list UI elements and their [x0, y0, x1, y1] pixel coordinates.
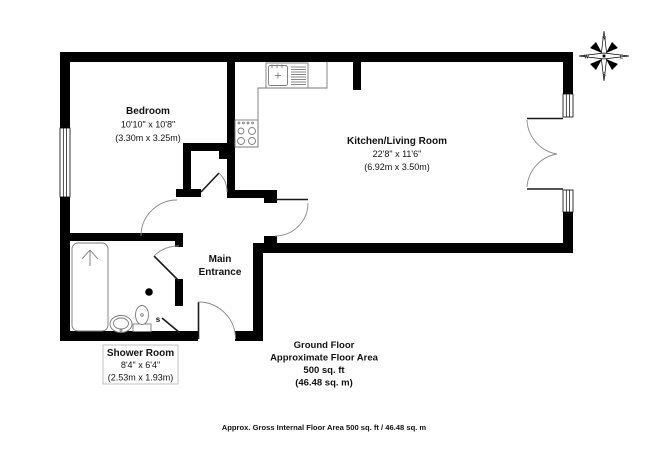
wall-segment-hall-right [253, 243, 263, 341]
storage-cupboard-door: s [156, 315, 180, 333]
room-labels: Bedroom 10'10" x 10'8" (3.30m x 3.25m) K… [103, 106, 447, 432]
wall-segment-bottom-shower [60, 331, 198, 341]
area-line1: Ground Floor [294, 340, 355, 351]
area-line3: 500 sq. ft [303, 365, 345, 376]
footer-caption: Approx. Gross Internal Floor Area 500 sq… [222, 423, 427, 432]
kitchen-living-metric: (6.92m x 3.50m) [364, 162, 430, 172]
compass-point-se [606, 59, 618, 70]
wall-segment-shower-right-upper [175, 233, 183, 247]
bedroom-name: Bedroom [126, 106, 170, 117]
wall-segment-shower-right-mid [175, 279, 183, 306]
compass-rose: N E S W [579, 31, 629, 81]
bedroom-window [60, 128, 70, 197]
shower-room-label: Shower Room 8'4" x 6'4" (2.53m x 1.93m) [103, 345, 178, 384]
bedroom-door [141, 200, 177, 236]
area-line4: (46.48 sq. m) [295, 378, 353, 389]
wall-segment-closet-left [183, 143, 191, 191]
shower-name: Shower Room [107, 348, 174, 359]
bedroom-label: Bedroom 10'10" x 10'8" (3.30m x 3.25m) [115, 106, 181, 143]
wall-segment-closet-stub [219, 143, 227, 159]
counter-outline [235, 62, 327, 147]
compass-point-ne [606, 42, 618, 53]
wash-basin [110, 316, 132, 333]
compass-point-sw [590, 59, 602, 70]
main-entrance-label: Main Entrance [199, 254, 242, 278]
shower-imperial: 8'4" x 6'4" [121, 360, 160, 370]
compass-label-n: N [602, 36, 606, 42]
hob [235, 120, 258, 147]
kitchen-living-name: Kitchen/Living Room [347, 136, 447, 147]
wall-segment-living-bottom [253, 243, 573, 253]
compass-label-w: W [584, 54, 589, 60]
kitchen-fixtures [235, 62, 327, 147]
wall-segment-livingdoor-jamb-bottom [264, 236, 277, 253]
soil-pipe-dot [145, 288, 153, 296]
floor-plan: s [0, 0, 650, 459]
french-doors [527, 119, 563, 190]
floor-plan-svg: s [0, 0, 650, 459]
doors: s [141, 119, 563, 340]
area-line2: Approximate Floor Area [270, 353, 379, 364]
compass-center [603, 55, 606, 58]
drainer [291, 67, 306, 85]
wall-segment-top [60, 52, 573, 62]
compass-point-nw [590, 42, 602, 53]
wall-segment-right-lower [563, 212, 573, 253]
wall-segment-kitchen-partition [227, 62, 235, 193]
sink-unit [266, 63, 308, 88]
bedroom-imperial: 10'10" x 10'8" [121, 120, 175, 130]
toilet [133, 306, 151, 332]
hall-closet-door [201, 173, 227, 192]
wall-segment-right-upper [563, 62, 573, 94]
wall-segment-livingdoor-jamb-top [264, 190, 277, 203]
wall-segment-left-lower [60, 197, 70, 341]
shower-room-fixtures [72, 243, 153, 333]
bedroom-metric: (3.30m x 3.25m) [115, 133, 181, 143]
area-summary: Ground Floor Approximate Floor Area 500 … [270, 340, 379, 389]
cupboard-label: s [156, 315, 161, 324]
living-window-upper [563, 94, 573, 117]
wall-segment-shower-top [70, 233, 177, 241]
shower-tray [72, 243, 108, 331]
entrance-line1: Main [209, 254, 232, 265]
kitchen-living-label: Kitchen/Living Room 22'8" x 11'6" (6.92m… [347, 136, 447, 172]
wall-segment-kitchen-stub [353, 62, 361, 90]
living-room-door [275, 200, 308, 237]
wall-segment-left-upper [60, 52, 70, 128]
walls [60, 52, 573, 341]
living-window-lower [563, 190, 573, 212]
compass-label-s: S [602, 73, 606, 79]
kitchen-living-imperial: 22'8" x 11'6" [373, 149, 422, 159]
entrance-line2: Entrance [199, 267, 242, 278]
shower-room-door [154, 246, 179, 281]
main-entrance-door [199, 302, 236, 339]
shower-metric: (2.53m x 1.93m) [108, 373, 174, 383]
